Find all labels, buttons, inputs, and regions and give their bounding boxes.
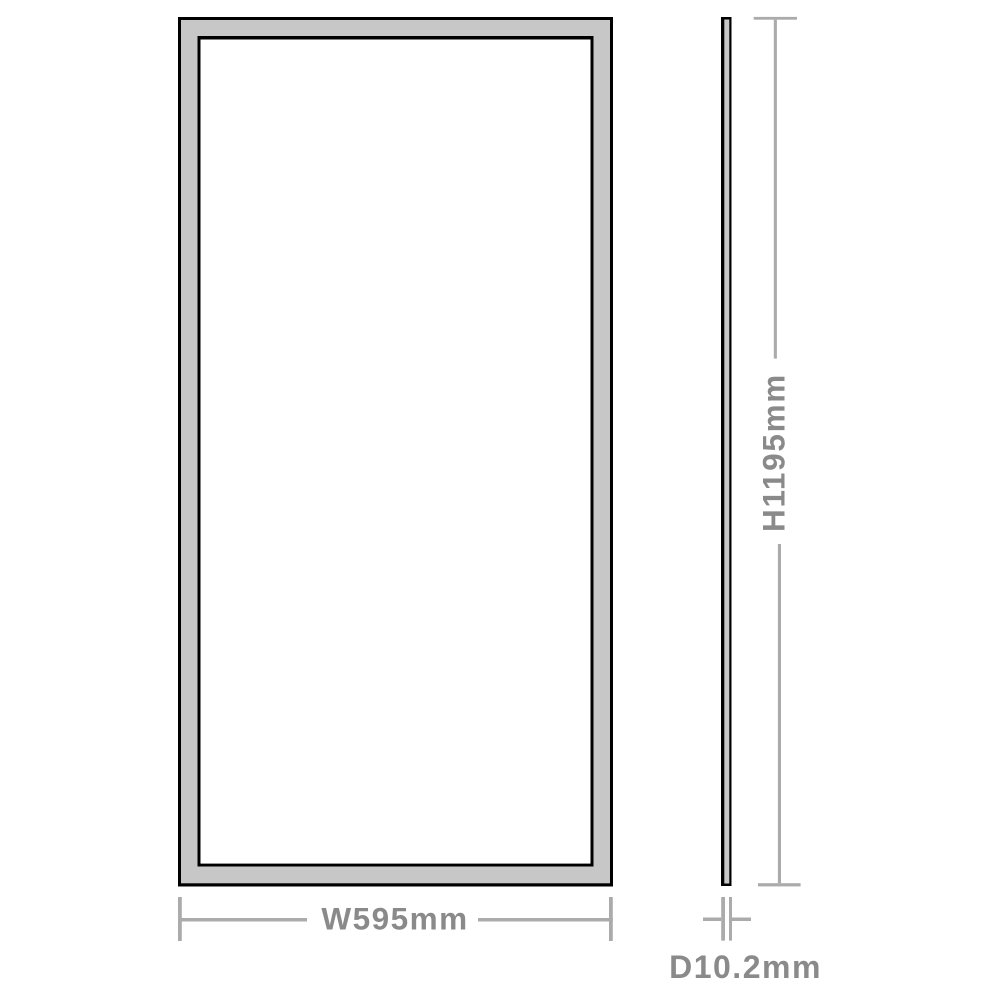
svg-text:W595mm: W595mm bbox=[321, 901, 468, 937]
svg-text:D10.2mm: D10.2mm bbox=[669, 949, 822, 985]
svg-text:H1195mm: H1195mm bbox=[756, 373, 792, 532]
